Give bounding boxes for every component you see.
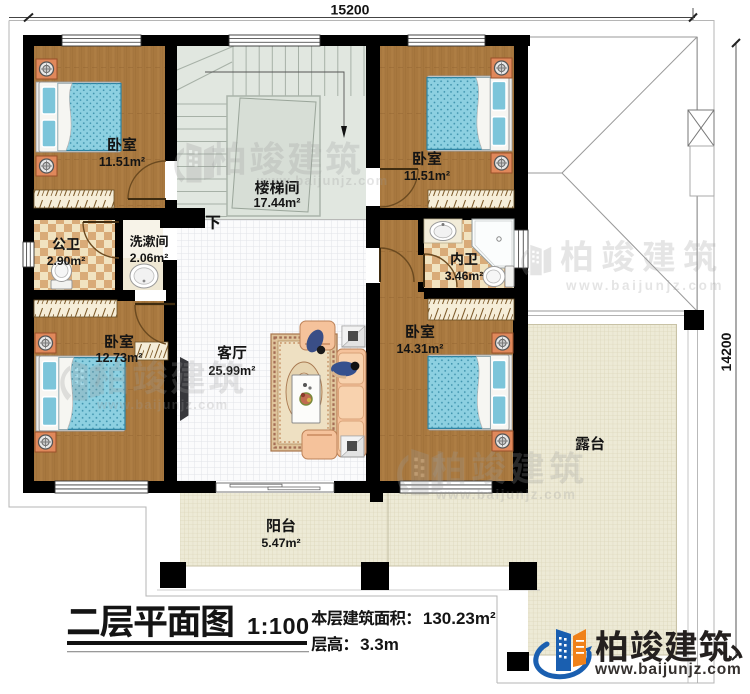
svg-text:1:100: 1:100 [247,613,310,639]
svg-text:14200: 14200 [718,332,734,371]
svg-text:3.3m: 3.3m [360,635,399,654]
svg-text:130.23m²: 130.23m² [423,609,496,628]
svg-text:www.baijunjz.com: www.baijunjz.com [435,487,577,502]
svg-text:www.baijunjz.com: www.baijunjz.com [594,661,742,678]
svg-text:15200: 15200 [331,2,370,18]
svg-text:2.06m²: 2.06m² [130,251,169,265]
svg-text:17.44m²: 17.44m² [254,196,301,210]
svg-text:www.baijunjz.com: www.baijunjz.com [565,278,724,293]
svg-text:5.47m²: 5.47m² [261,536,300,550]
svg-text:3.46m²: 3.46m² [445,269,484,283]
svg-text:14.31m²: 14.31m² [397,342,444,356]
svg-text:www.baijunjz.com: www.baijunjz.com [256,173,388,188]
svg-text:2.90m²: 2.90m² [47,254,86,268]
svg-text:11.51m²: 11.51m² [404,169,450,183]
svg-text:11.51m²: 11.51m² [99,155,145,169]
svg-text:www.baijunjz.com: www.baijunjz.com [96,397,228,412]
